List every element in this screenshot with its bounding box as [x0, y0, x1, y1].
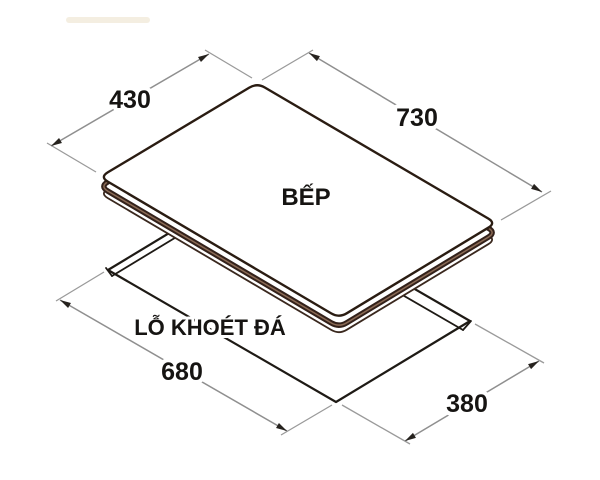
dimension-label-380: 380 [446, 390, 488, 418]
dimension-label-430: 430 [109, 86, 151, 114]
dimension-label-680: 680 [161, 358, 203, 386]
watermark-smudge [66, 17, 150, 23]
cooktop-installation-diagram: 430 730 680 380 BẾP LỖ KHOÉT ĐÁ [0, 0, 600, 480]
cutout-label: LỖ KHOÉT ĐÁ [134, 314, 286, 340]
dimension-label-730: 730 [396, 104, 438, 132]
cooktop-label: BẾP [281, 183, 330, 211]
technical-drawing-page: 430 730 680 380 BẾP LỖ KHOÉT ĐÁ [0, 0, 600, 480]
